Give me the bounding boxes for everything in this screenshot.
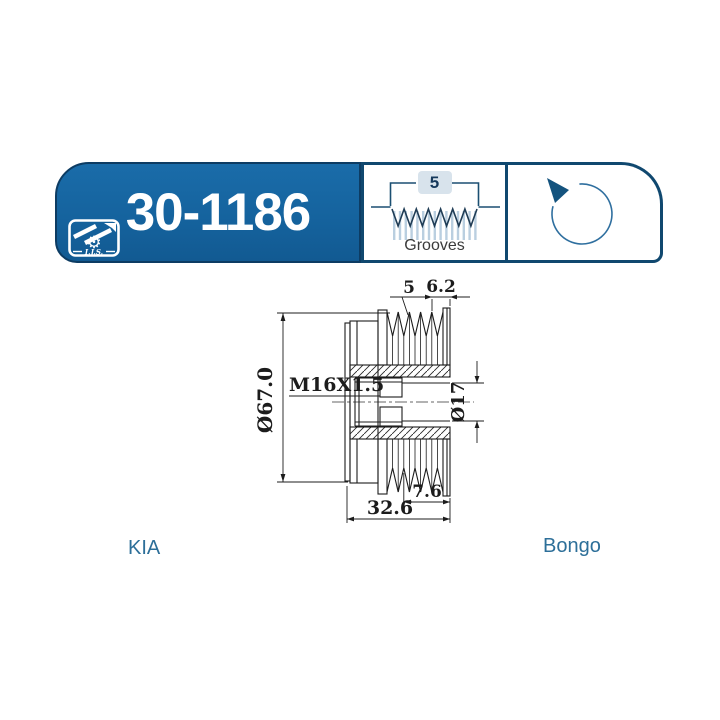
groove-count-badge: 5 — [418, 171, 452, 194]
dim-groove-count: 5 — [403, 278, 415, 298]
dim-outer-diameter: Ø67.0 — [253, 367, 277, 433]
brand-block: ⚙ I.J.S. 30-1186 — [55, 162, 361, 263]
dim-bore-diameter: Ø17 — [448, 382, 469, 423]
catalog-card: ⚙ I.J.S. 30-1186 — [0, 0, 720, 720]
dim-overall-width: 32.6 — [367, 497, 413, 519]
rotation-cell — [508, 162, 663, 263]
dim-thread: M16X1.5 — [289, 374, 384, 396]
technical-drawing: 5 6.2 M16X1.5 Ø67.0 Ø17 7.6 32.6 — [235, 275, 505, 545]
model-label: Bongo — [543, 535, 601, 558]
dim-groove-pitch: 6.2 — [426, 277, 456, 297]
rotation-direction-icon — [508, 165, 657, 260]
grooves-label: Grooves — [364, 237, 505, 255]
header-bar: ⚙ I.J.S. 30-1186 — [55, 162, 663, 263]
rotation-arrowhead — [547, 178, 569, 203]
grooves-cell: 5 Grooves — [361, 162, 508, 263]
dim-groove-width: 7.6 — [412, 482, 442, 502]
make-label: KIA — [128, 537, 160, 560]
part-number: 30-1186 — [57, 164, 359, 261]
